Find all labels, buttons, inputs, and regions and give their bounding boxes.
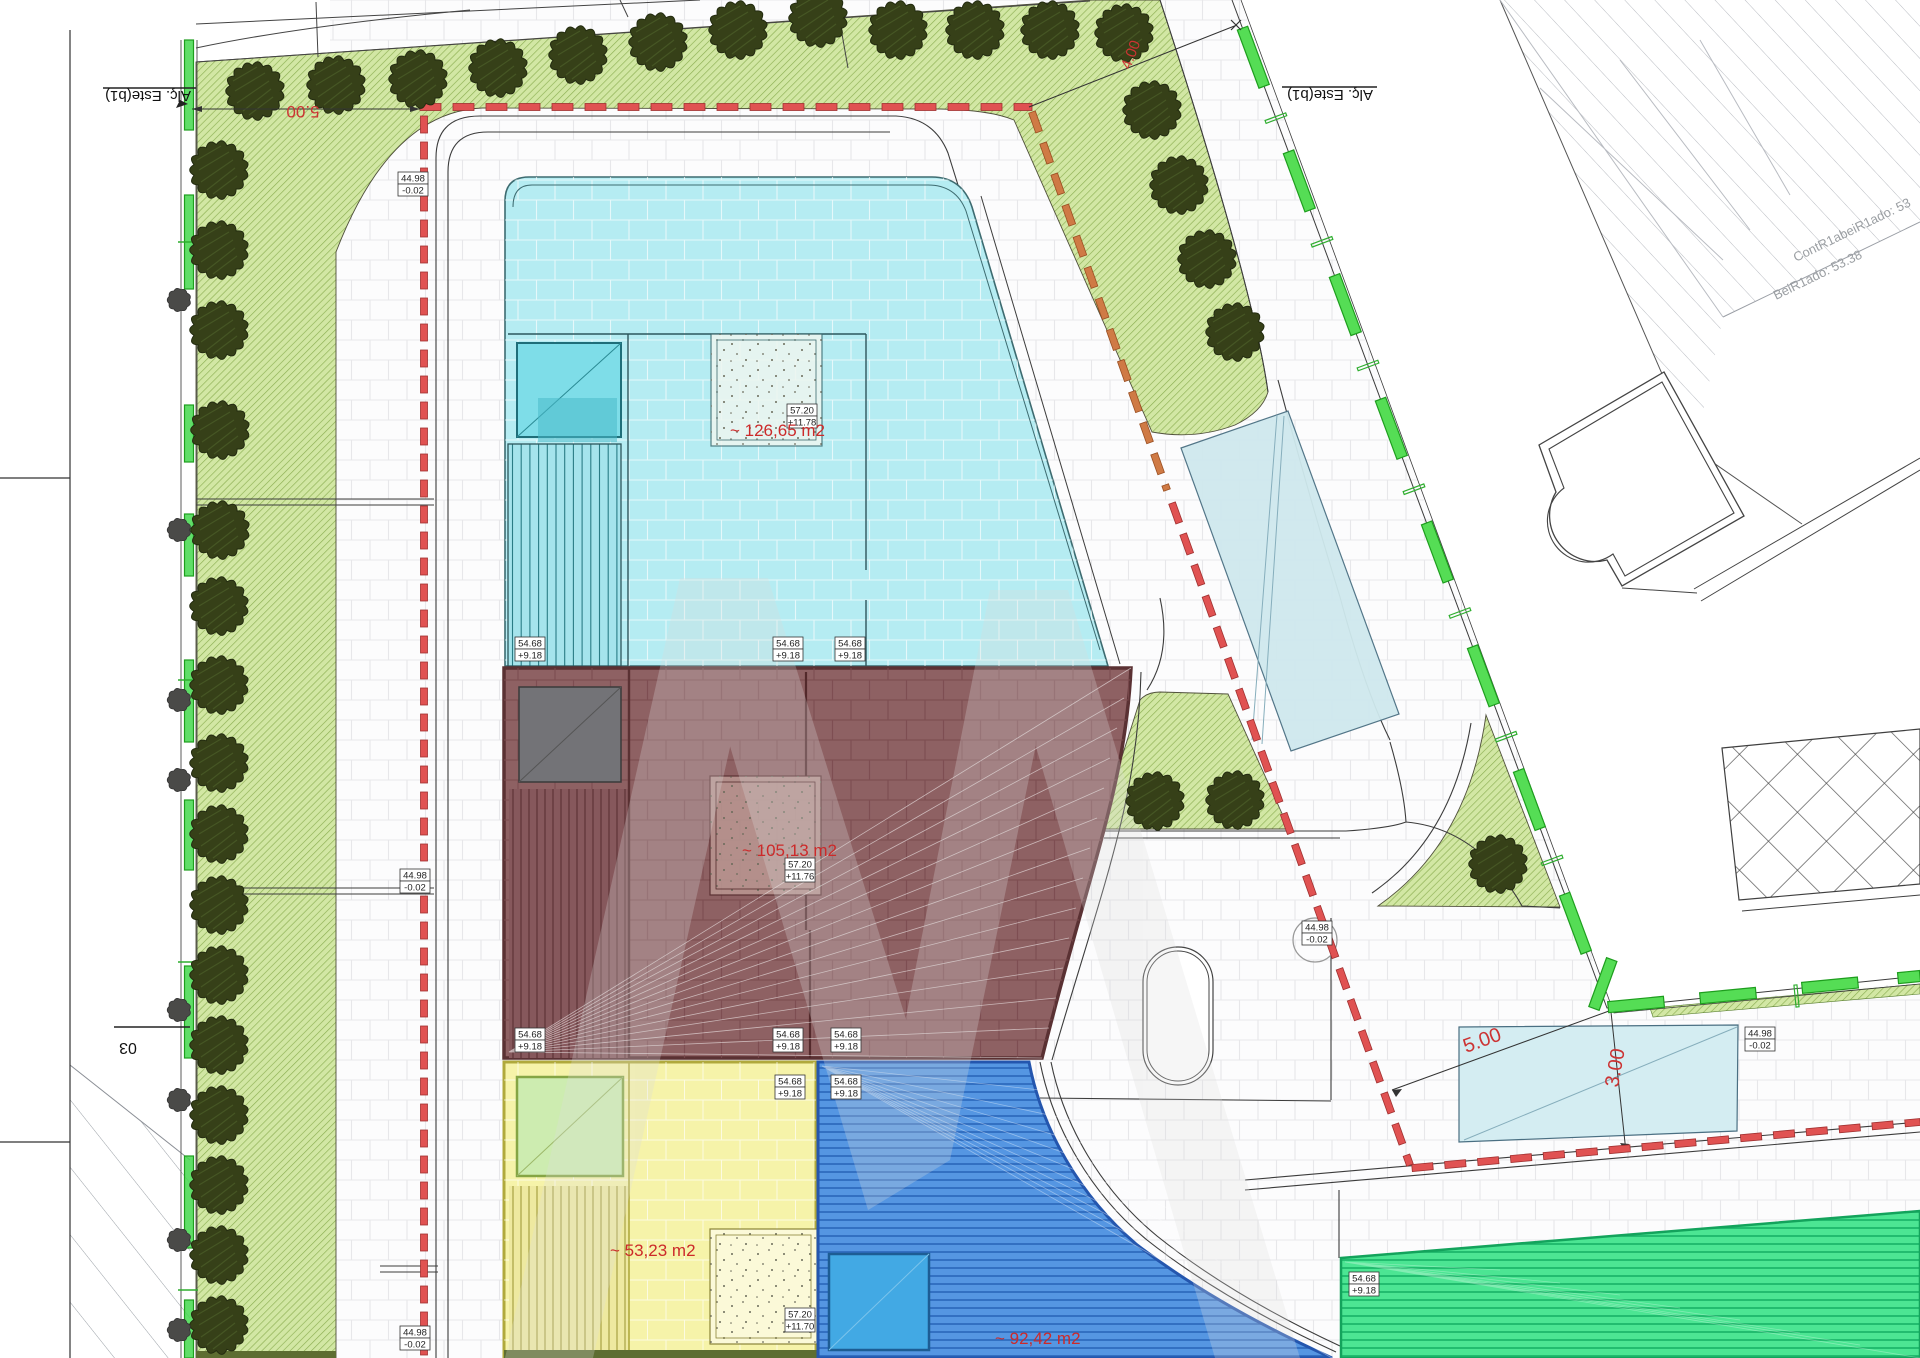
svg-text:+9.18: +9.18 xyxy=(1352,1286,1376,1297)
svg-text:+9.18: +9.18 xyxy=(834,1042,858,1053)
svg-text:~ 126,65 m2: ~ 126,65 m2 xyxy=(730,421,825,440)
svg-text:54.68: 54.68 xyxy=(834,1030,858,1041)
svg-text:+9.18: +9.18 xyxy=(778,1089,802,1100)
svg-text:44.98: 44.98 xyxy=(1748,1029,1772,1040)
svg-text:54.68: 54.68 xyxy=(776,639,800,650)
svg-text:~ 53,23 m2: ~ 53,23 m2 xyxy=(610,1241,696,1260)
svg-text:54.68: 54.68 xyxy=(778,1077,802,1088)
svg-text:44.98: 44.98 xyxy=(403,871,427,882)
svg-text:-0.02: -0.02 xyxy=(1749,1041,1771,1052)
svg-text:-0.02: -0.02 xyxy=(402,186,424,197)
svg-text:+9.18: +9.18 xyxy=(834,1089,858,1100)
svg-text:54.68: 54.68 xyxy=(518,1030,542,1041)
svg-text:44.98: 44.98 xyxy=(403,1328,427,1339)
svg-text:5.00: 5.00 xyxy=(286,102,319,121)
svg-text:57.20: 57.20 xyxy=(788,1310,812,1321)
svg-text:-0.02: -0.02 xyxy=(404,883,426,894)
svg-text:Alç. Este(b1): Alç. Este(b1) xyxy=(105,87,191,104)
svg-text:54.68: 54.68 xyxy=(838,639,862,650)
svg-text:57.20: 57.20 xyxy=(788,860,812,871)
svg-text:+9.18: +9.18 xyxy=(518,1042,542,1053)
svg-text:44.98: 44.98 xyxy=(401,174,425,185)
svg-text:+9.18: +9.18 xyxy=(838,651,862,662)
svg-text:~ 92,42 m2: ~ 92,42 m2 xyxy=(995,1329,1081,1348)
svg-text:03: 03 xyxy=(119,1039,137,1056)
svg-text:57.20: 57.20 xyxy=(790,406,814,417)
svg-text:+9.18: +9.18 xyxy=(518,651,542,662)
svg-text:-0.02: -0.02 xyxy=(404,1340,426,1351)
svg-text:54.68: 54.68 xyxy=(834,1077,858,1088)
svg-text:-0.02: -0.02 xyxy=(1306,935,1328,946)
svg-text:+9.18: +9.18 xyxy=(776,651,800,662)
svg-text:+9.18: +9.18 xyxy=(776,1042,800,1053)
svg-text:54.68: 54.68 xyxy=(776,1030,800,1041)
svg-text:+11.70: +11.70 xyxy=(786,1322,815,1333)
svg-text:44.98: 44.98 xyxy=(1305,923,1329,934)
svg-text:+11.76: +11.76 xyxy=(786,872,815,883)
svg-text:54.68: 54.68 xyxy=(518,639,542,650)
svg-text:Alç. Este(b1): Alç. Este(b1) xyxy=(1287,86,1373,103)
svg-text:54.68: 54.68 xyxy=(1352,1274,1376,1285)
svg-text:~ 105,13 m2: ~ 105,13 m2 xyxy=(742,841,837,860)
